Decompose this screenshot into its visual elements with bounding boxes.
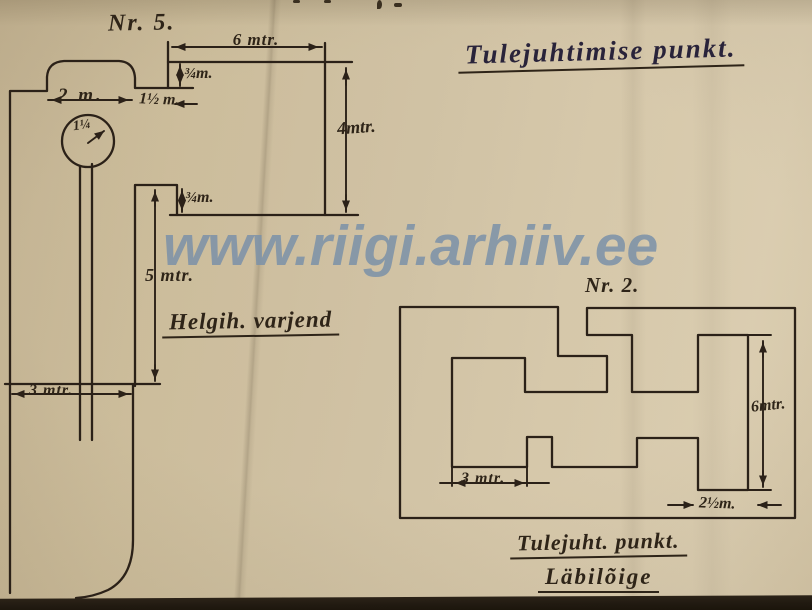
- scanned-archive-sheet: Nr. 5. 6 mtr. ¾m. 2 m. 1½ m. 1¼ 4mtr. ¾m…: [0, 0, 812, 610]
- circle-pointer-arrow: [88, 131, 104, 143]
- dim-3mtr2-label: 3 mtr.: [461, 471, 505, 487]
- archive-watermark: www.riigi.arhiiv.ee: [163, 213, 658, 279]
- dim-34m-top-label: ¾m.: [184, 66, 212, 82]
- nr5-caption: Helgih. varjend: [162, 307, 340, 338]
- ink-drawing-layer: [0, 0, 812, 610]
- circle-diameter-label: 1¼: [72, 118, 91, 134]
- dim-2m-label: 2 m.: [58, 86, 104, 105]
- dim-25m-label: 2½m.: [699, 495, 736, 512]
- nr2-caption-line2: Läbilõige: [538, 565, 659, 593]
- nr2-caption-line1: Tulejuht. punkt.: [510, 529, 687, 559]
- dim-15m-label: 1½ m.: [139, 91, 180, 108]
- nr5-curved-base: [76, 384, 133, 598]
- scan-bottom-edge: [0, 595, 812, 610]
- dim-3mtr-label: 3 mtr.: [29, 383, 73, 399]
- nr2-drawing: [400, 307, 795, 518]
- nr2-plan-outline: [400, 307, 795, 518]
- nr5-number-label: Nr. 5.: [108, 10, 176, 35]
- dim-4mtr-label: 4mtr.: [336, 117, 376, 138]
- dim-6mtr-label: 6 mtr.: [216, 31, 296, 48]
- dim-34m-low-label: ¾m.: [185, 190, 213, 206]
